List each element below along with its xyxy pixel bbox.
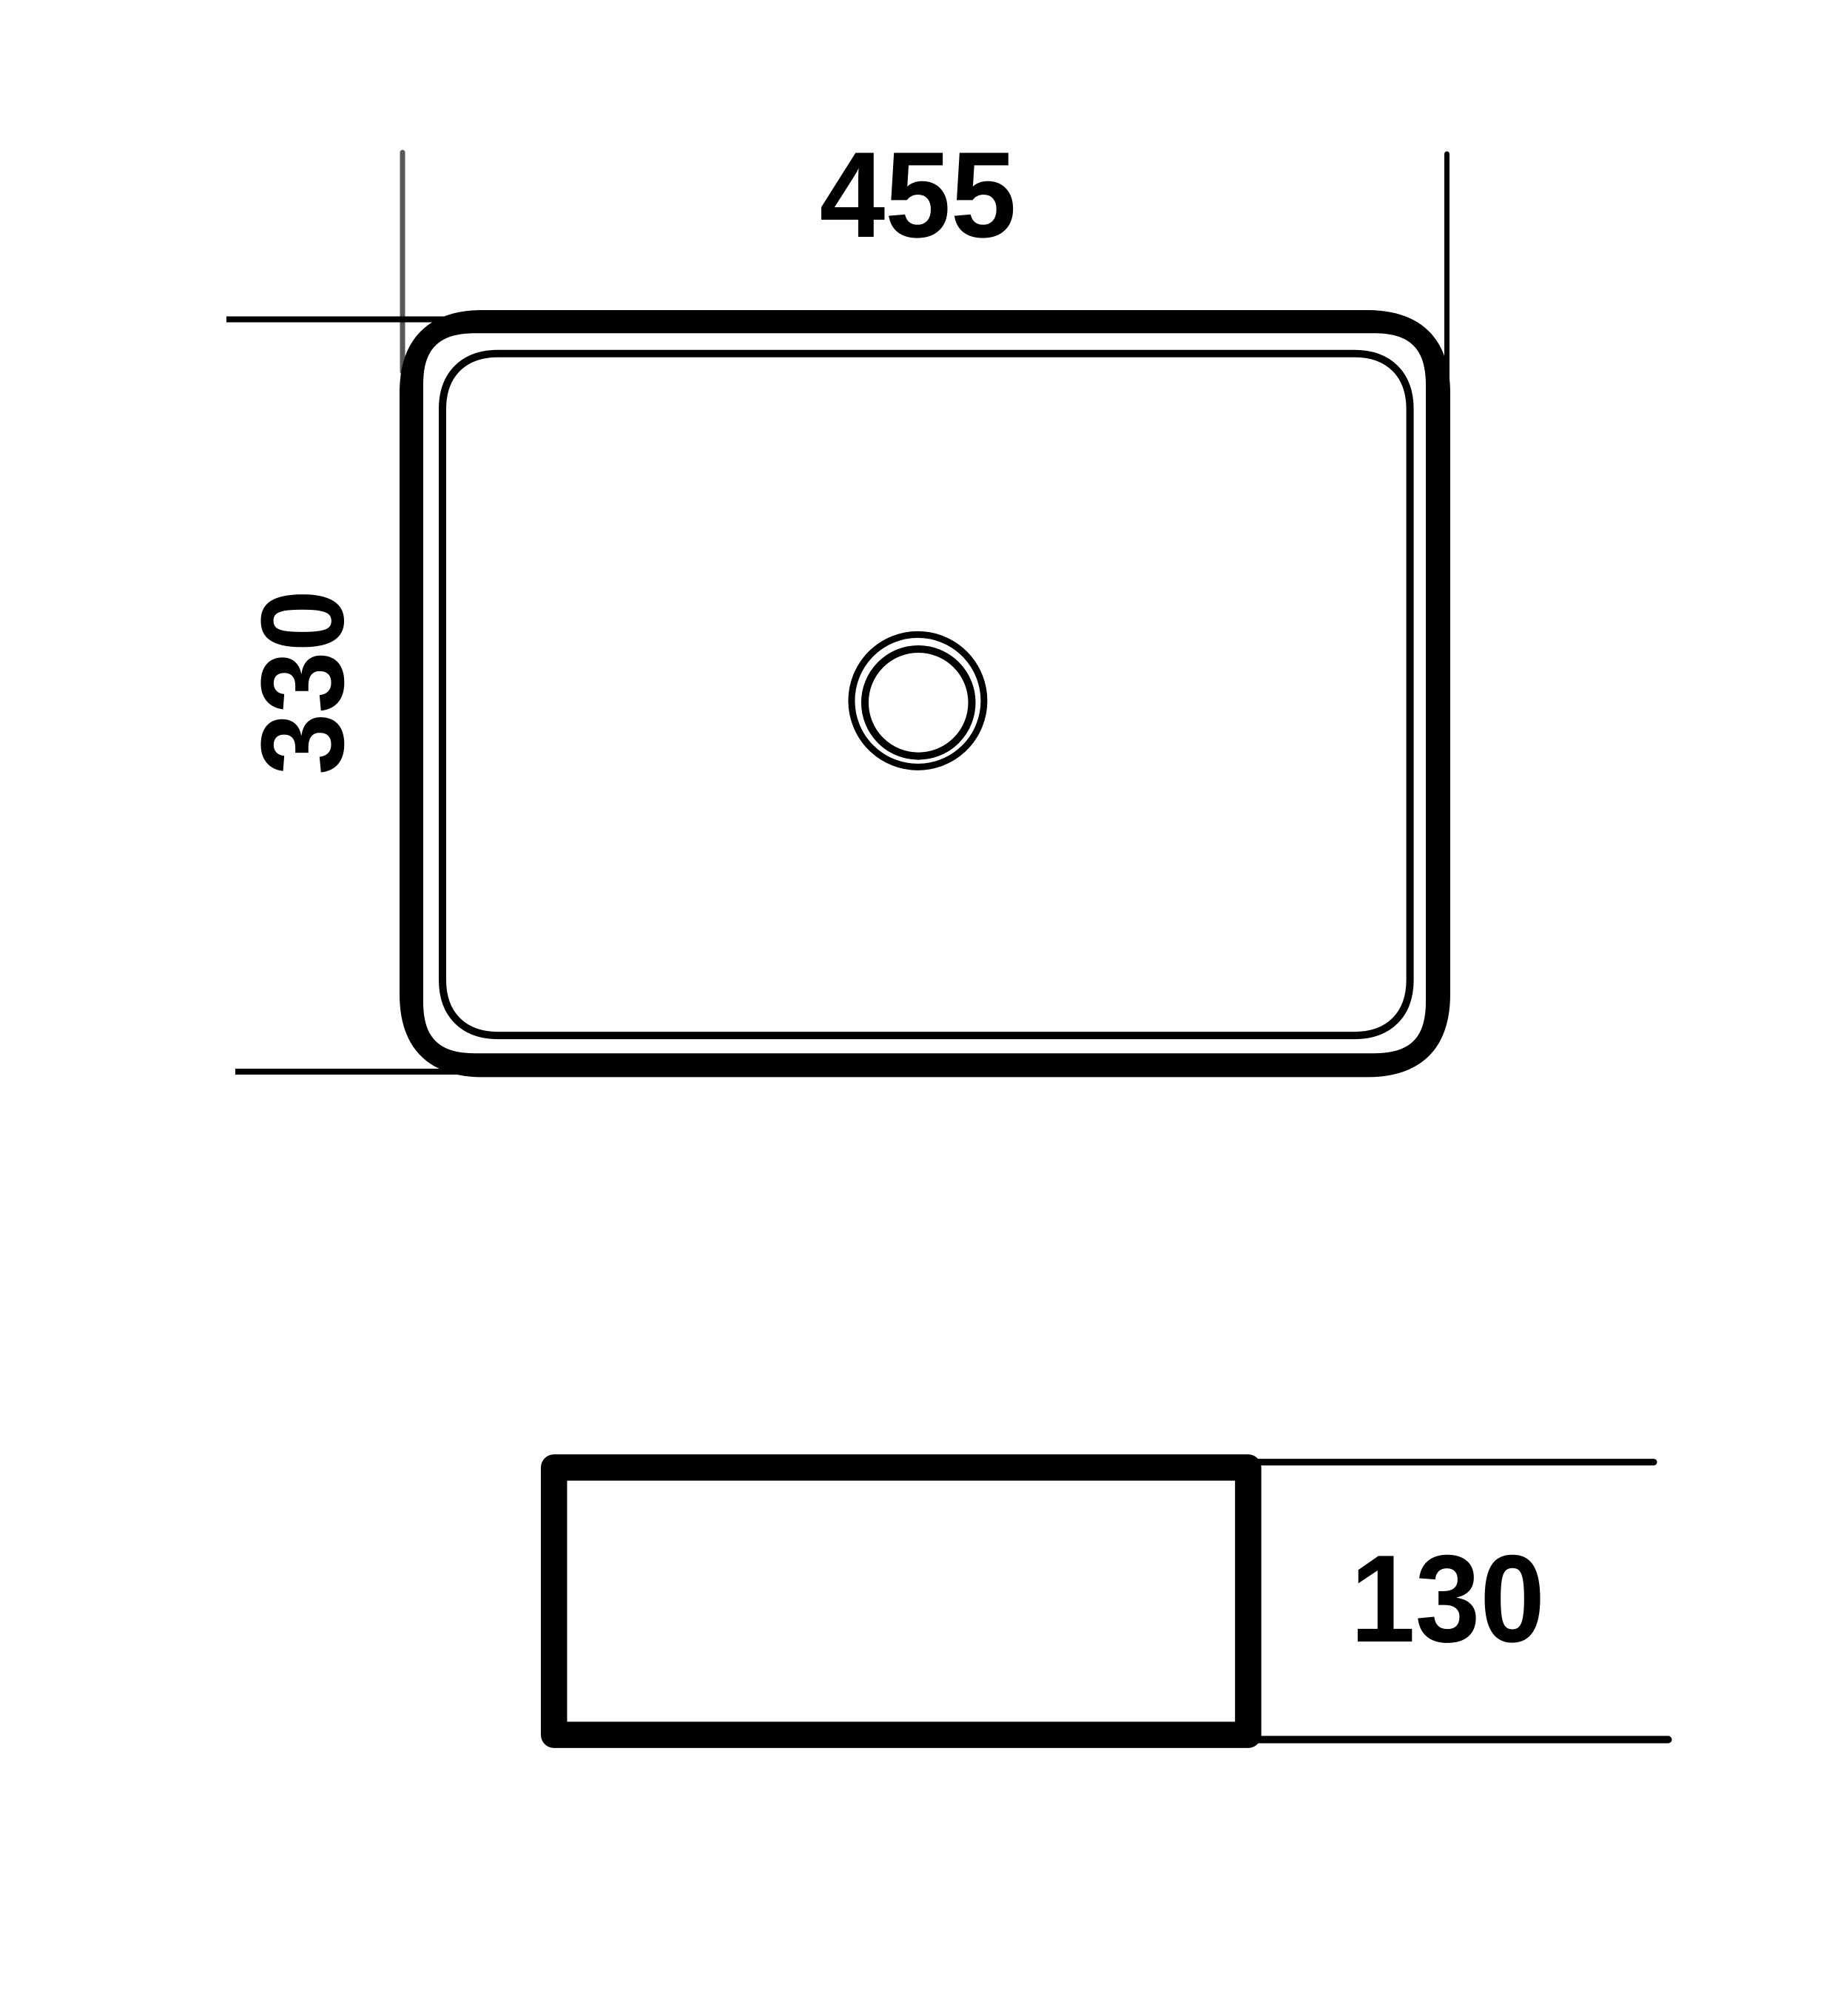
- svg-text:330: 330: [237, 590, 368, 775]
- svg-text:455: 455: [820, 127, 1017, 263]
- svg-text:130: 130: [1350, 1529, 1545, 1668]
